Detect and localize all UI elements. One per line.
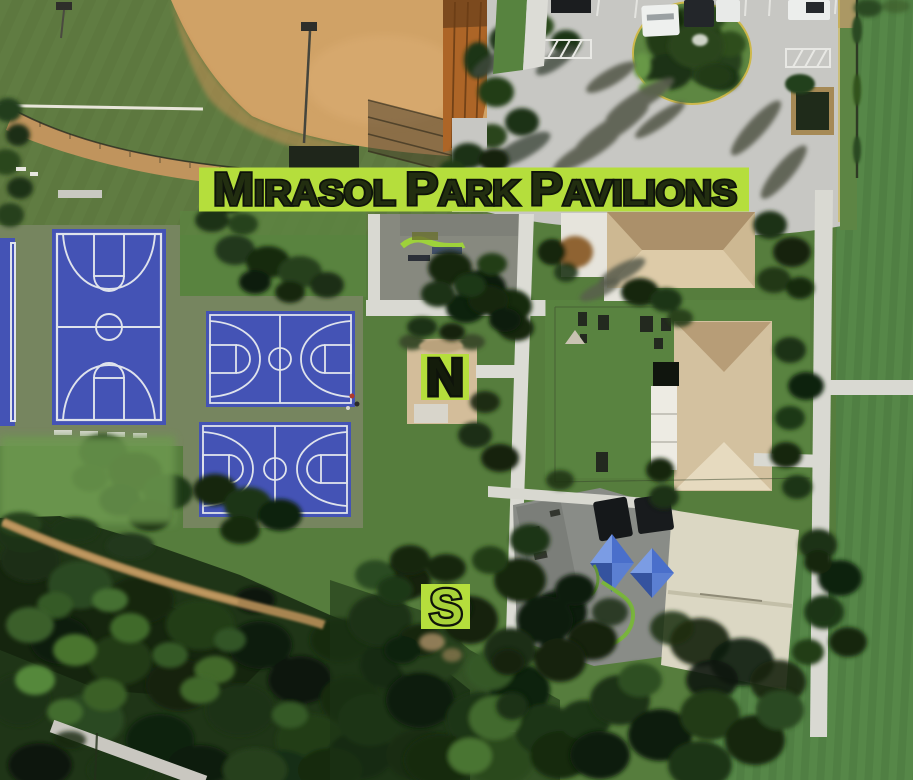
svg-text:S: S <box>429 579 462 635</box>
svg-text:N: N <box>426 349 464 407</box>
